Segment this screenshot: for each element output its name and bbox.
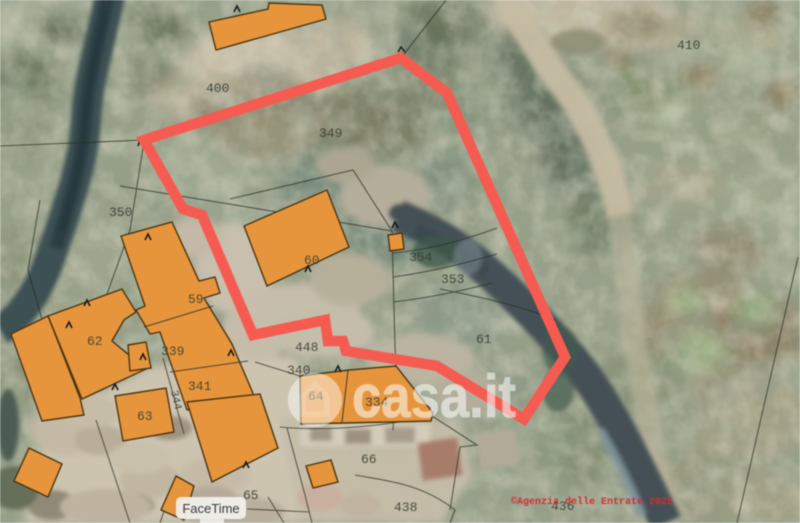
svg-text:FaceTime: FaceTime — [182, 501, 239, 516]
svg-text:66: 66 — [361, 452, 377, 467]
svg-text:353: 353 — [441, 272, 464, 287]
svg-text:60: 60 — [304, 253, 320, 268]
svg-text:400: 400 — [206, 81, 229, 96]
svg-text:59: 59 — [188, 292, 204, 307]
svg-text:410: 410 — [677, 38, 700, 53]
svg-text:casa.it: casa.it — [352, 363, 516, 430]
svg-text:349: 349 — [319, 126, 342, 141]
svg-text:62: 62 — [87, 334, 103, 349]
svg-text:448: 448 — [295, 340, 318, 355]
svg-text:©Agenzia delle Entrate 2025: ©Agenzia delle Entrate 2025 — [511, 496, 673, 508]
svg-text:63: 63 — [137, 409, 153, 424]
svg-text:354: 354 — [409, 250, 433, 265]
svg-text:350: 350 — [109, 205, 132, 220]
svg-text:339: 339 — [161, 344, 184, 359]
svg-text:61: 61 — [476, 332, 492, 347]
svg-text:438: 438 — [394, 500, 417, 515]
svg-text:341: 341 — [188, 379, 212, 394]
